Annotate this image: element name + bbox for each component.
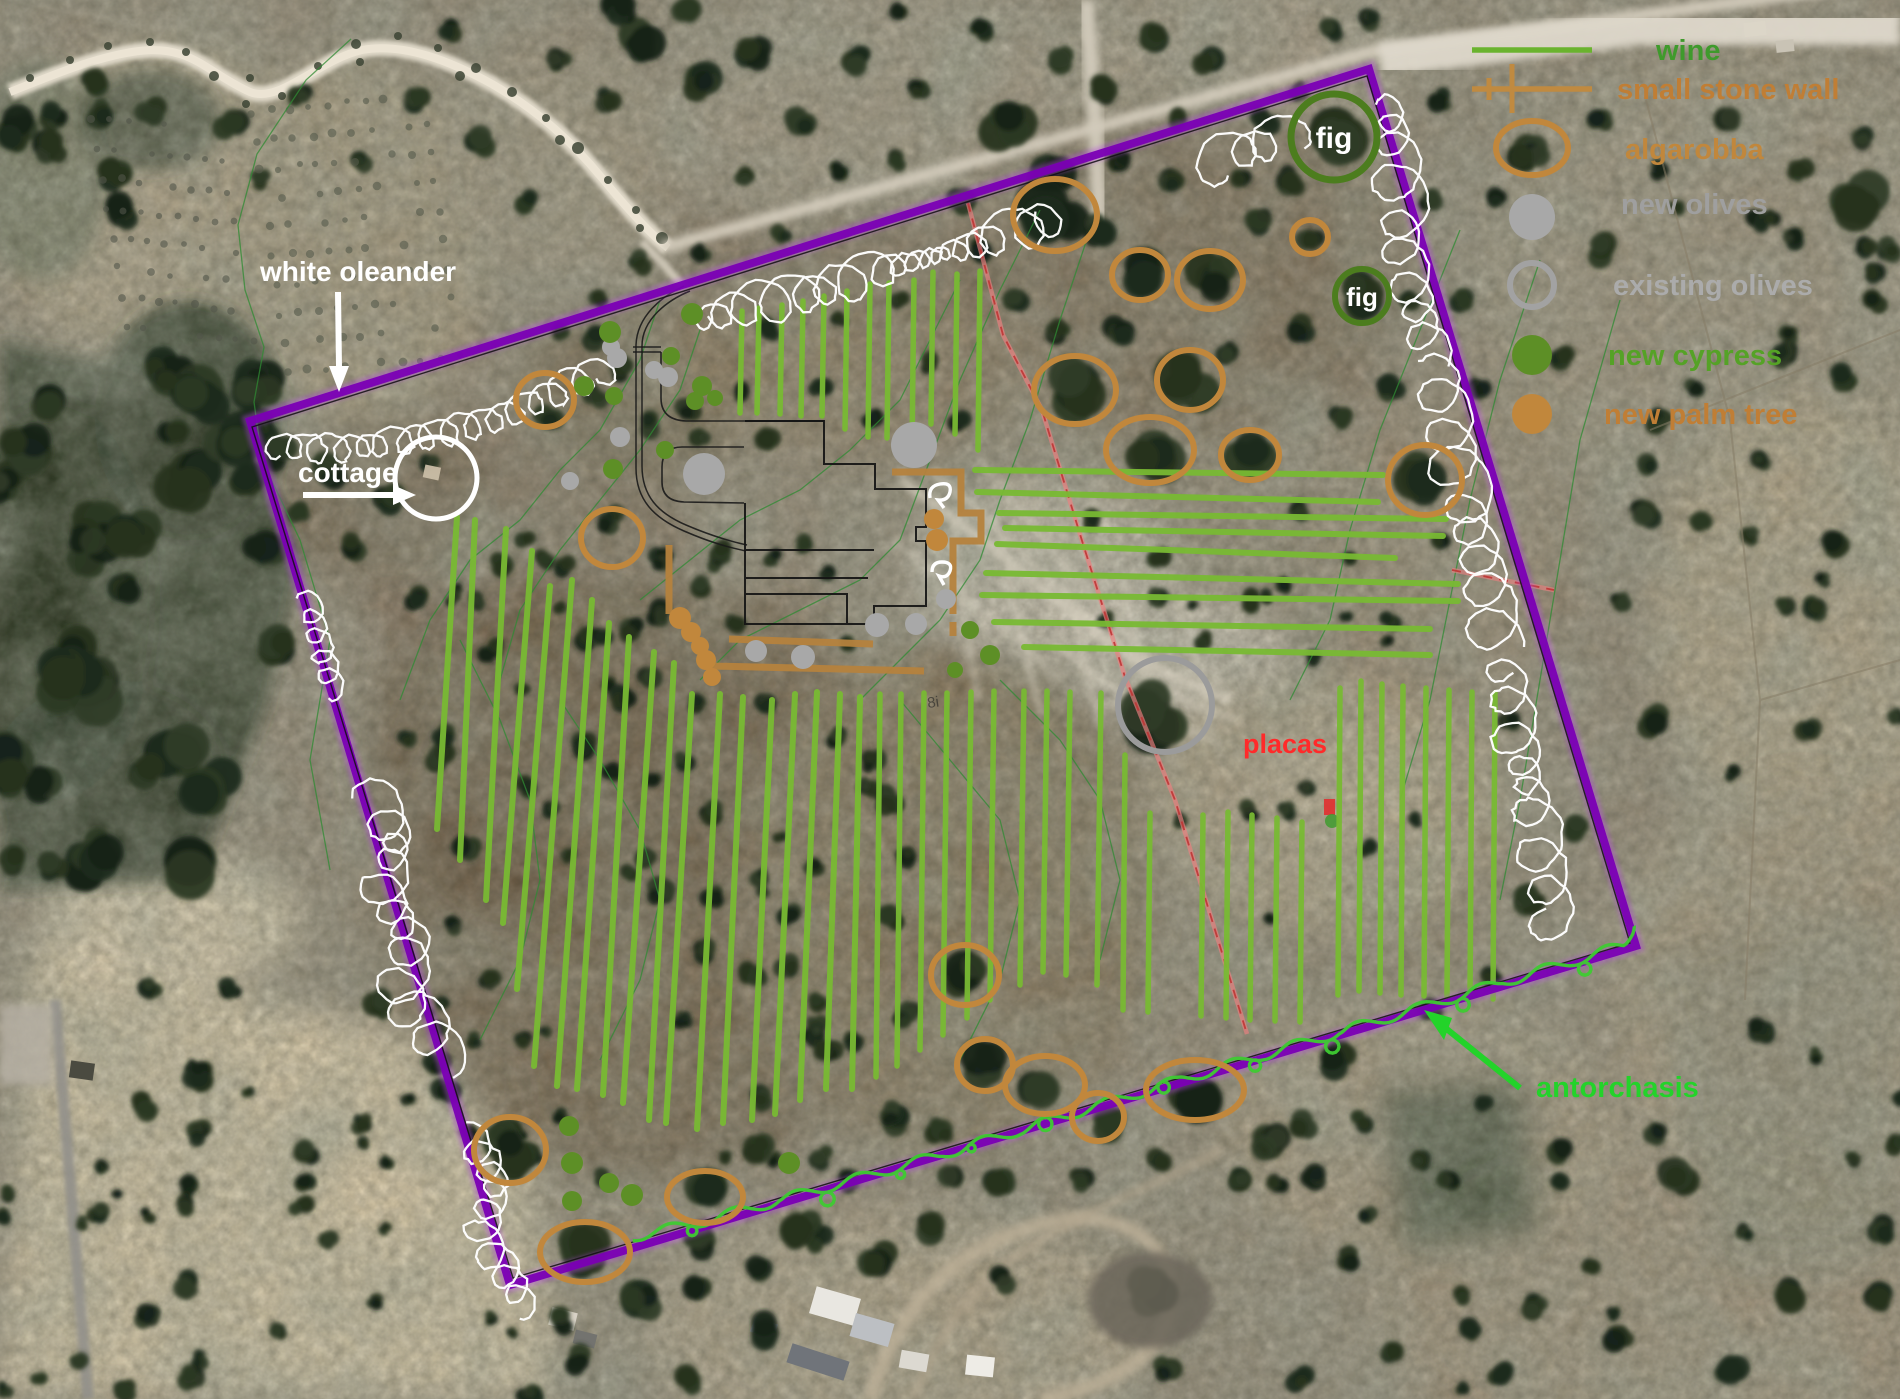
svg-text:small stone wall: small stone wall xyxy=(1617,74,1839,106)
svg-text:fig: fig xyxy=(1346,282,1378,312)
svg-text:antorchasis: antorchasis xyxy=(1536,1072,1699,1104)
svg-text:8i: 8i xyxy=(926,693,940,711)
svg-text:wine: wine xyxy=(1655,35,1720,67)
svg-text:existing olives: existing olives xyxy=(1613,270,1813,302)
svg-text:new cypress: new cypress xyxy=(1608,340,1782,372)
svg-text:placas: placas xyxy=(1243,729,1327,759)
svg-text:white oleander: white oleander xyxy=(259,256,456,287)
svg-text:new olives: new olives xyxy=(1621,189,1768,221)
svg-text:fig: fig xyxy=(1316,122,1353,155)
svg-text:algarobba: algarobba xyxy=(1625,134,1764,166)
svg-text:new palm tree: new palm tree xyxy=(1604,399,1797,431)
svg-text:cottage: cottage xyxy=(298,457,398,488)
